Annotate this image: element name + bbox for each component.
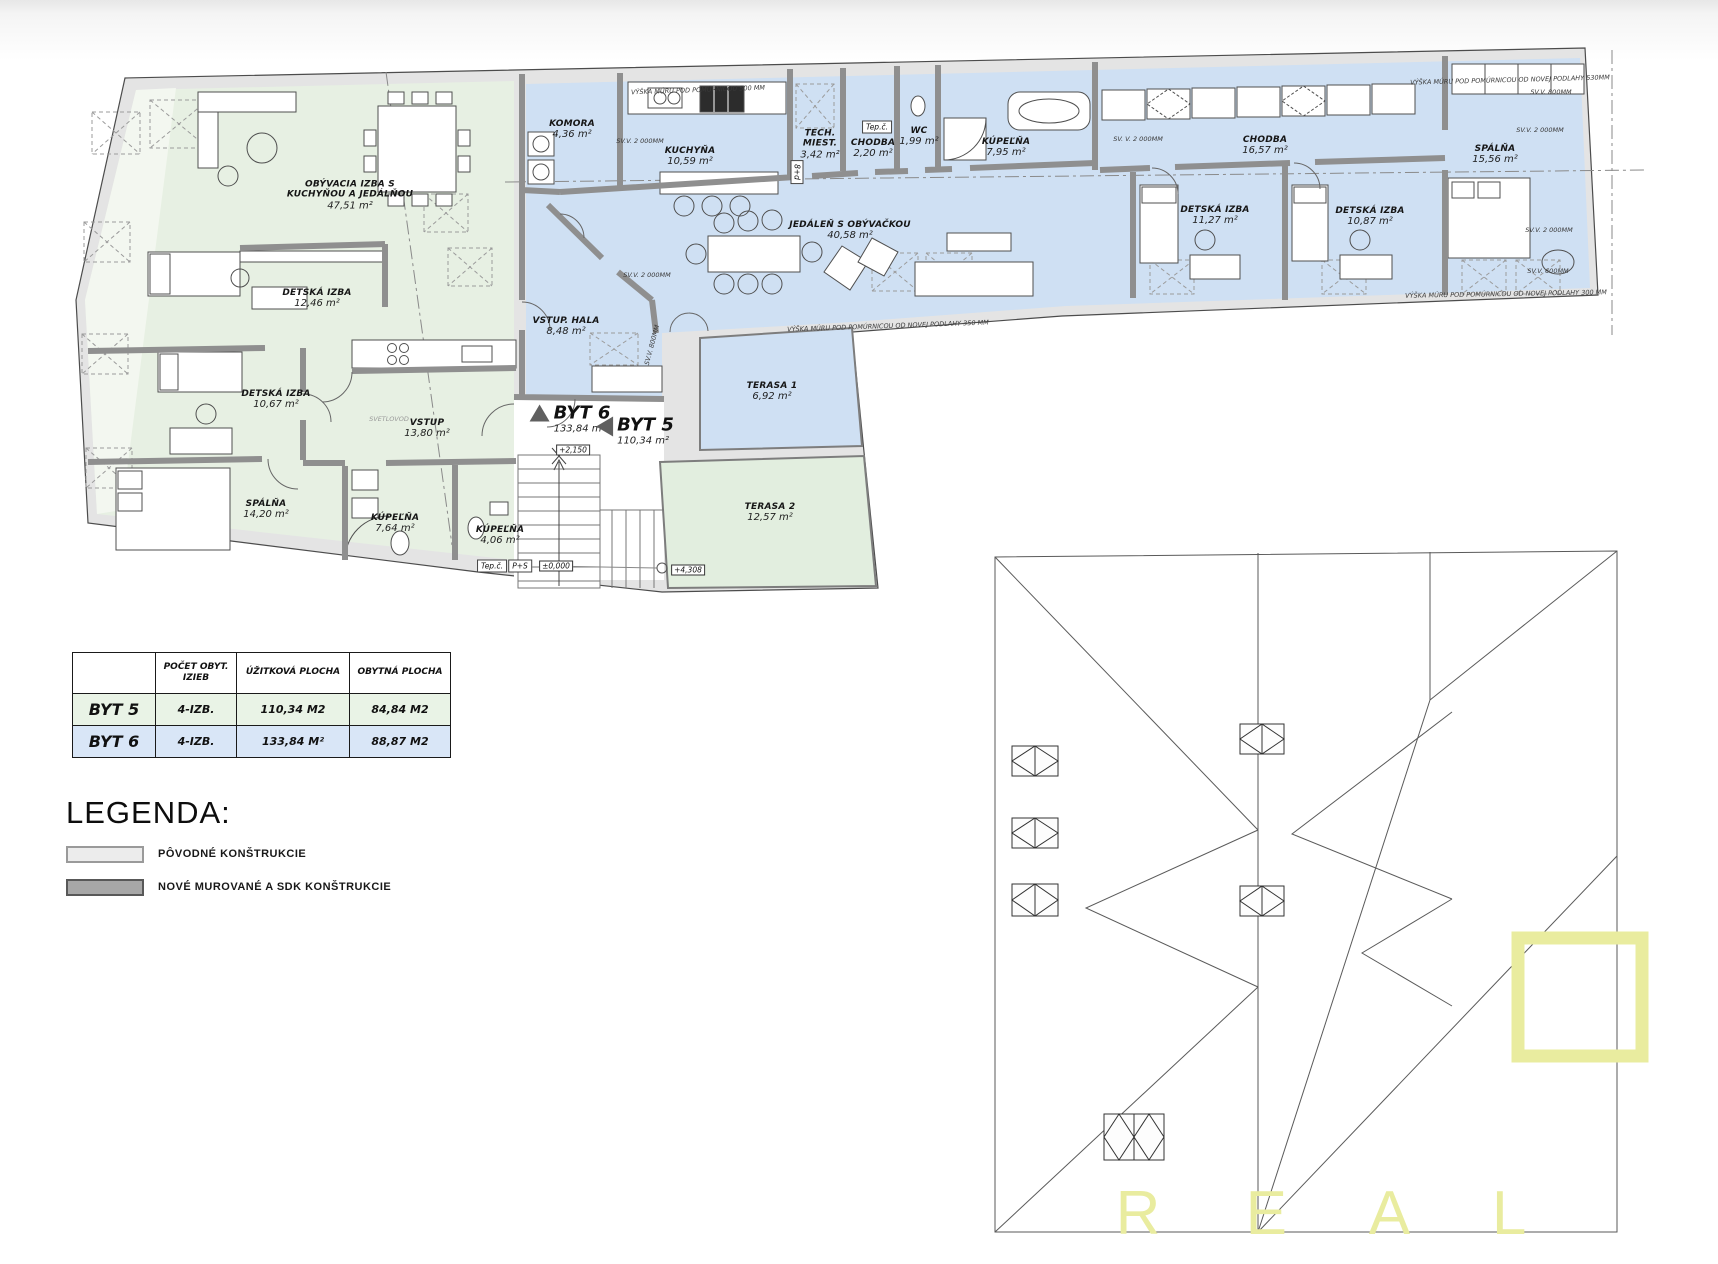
unit-label-byt5: BYT 5 110,34 m²: [596, 417, 674, 448]
height-annotation: SV.V. 800MM: [1530, 88, 1571, 96]
legend-item-label: PÔVODNÉ KONŠTRUKCIE: [158, 849, 306, 860]
table-cell-rooms: 4-IZB.: [156, 694, 237, 726]
table-cell-usable-area: 133,84 M²: [237, 726, 350, 758]
legend-item-original: PÔVODNÉ KONŠTRUKCIE: [66, 846, 391, 863]
unit-area: 110,34 m²: [617, 435, 674, 448]
room-label: VSTUP. HALA 8,48 m²: [532, 316, 599, 338]
brand-square-icon: [1518, 938, 1642, 1056]
room-name: JEDÁLEŇ S OBÝVAČKOU: [789, 220, 910, 230]
room-name: KÚPEĽŇA: [982, 137, 1030, 147]
level-marker: ±0,000: [539, 561, 573, 572]
room-name: VSTUP. HALA: [532, 316, 599, 326]
room-area: 10,59 m²: [665, 156, 716, 168]
room-label: KOMORA 4,36 m²: [549, 119, 595, 141]
legend-swatch-new-icon: [66, 879, 144, 896]
room-label: KÚPEĽŇA 7,64 m²: [371, 513, 419, 535]
height-annotation: SV.V. 600MM: [1527, 267, 1568, 275]
room-name: WC: [899, 126, 938, 136]
room-label: DETSKÁ IZBA 10,87 m²: [1335, 206, 1404, 228]
legend-title: LEGENDA:: [66, 796, 391, 830]
room-name: KÚPEĽŇA: [371, 513, 419, 523]
room-area: 12,46 m²: [282, 298, 351, 310]
table-cell-usable-area: 110,34 M2: [237, 694, 350, 726]
roof-plan: [995, 551, 1617, 1232]
table-cell-living-area: 88,87 M2: [350, 726, 451, 758]
room-name: CHODBA: [1242, 135, 1288, 145]
room-area: 7,95 m²: [982, 147, 1030, 159]
room-name: DETSKÁ IZBA: [1335, 206, 1404, 216]
room-label: VSTUP 13,80 m²: [404, 418, 450, 440]
room-name: DETSKÁ IZBA: [282, 288, 351, 298]
entrance-arrow-up-icon: [530, 405, 550, 422]
room-area: 8,48 m²: [532, 326, 599, 338]
room-area: 6,92 m²: [747, 391, 798, 403]
table-cell-rooms: 4-IZB.: [156, 726, 237, 758]
terrace-label: TERASA 2 12,57 m²: [745, 502, 796, 524]
room-area: 7,64 m²: [371, 523, 419, 535]
room-label: KÚPEĽŇA 4,06 m²: [476, 525, 524, 547]
table-header: ÚŽITKOVÁ PLOCHA: [237, 653, 350, 694]
room-name: VSTUP: [404, 418, 450, 428]
level-marker: +2,150: [556, 445, 590, 456]
room-label: KUCHYŇA 10,59 m²: [665, 146, 716, 168]
table-header-row: POČET OBYT. IZIEB ÚŽITKOVÁ PLOCHA OBYTNÁ…: [73, 653, 451, 694]
room-name: KOMORA: [549, 119, 595, 129]
room-name: KUCHYŇA: [665, 146, 716, 156]
table-row-byt6: BYT 6 4-IZB. 133,84 M² 88,87 M2: [73, 726, 451, 758]
room-area: 16,57 m²: [1242, 145, 1288, 157]
room-name: TERASA 1: [747, 381, 798, 391]
table-header: POČET OBYT. IZIEB: [156, 653, 237, 694]
room-area: 12,57 m²: [745, 512, 796, 524]
room-label: DETSKÁ IZBA 10,67 m²: [241, 389, 310, 411]
room-area: 1,99 m²: [899, 136, 938, 148]
table-header: OBYTNÁ PLOCHA: [350, 653, 451, 694]
room-area: 10,67 m²: [241, 399, 310, 411]
legend-item-new: NOVÉ MUROVANÉ A SDK KONŠTRUKCIE: [66, 879, 391, 896]
unit-name: BYT 5: [617, 417, 674, 435]
entrance-arrow-left-icon: [596, 417, 613, 437]
room-area: 4,36 m²: [549, 129, 595, 141]
floorplan-page: R E A L OBÝVACIA IZBA S KUCHYŇOU A JEDÁL…: [0, 0, 1718, 1264]
room-area: 10,87 m²: [1335, 216, 1404, 228]
room-label: SPÁLŇA 14,20 m²: [243, 499, 289, 521]
room-label: CHODBA 16,57 m²: [1242, 135, 1288, 157]
room-area: 11,27 m²: [1180, 215, 1249, 227]
room-area: 15,56 m²: [1472, 154, 1518, 166]
room-name: DETSKÁ IZBA: [1180, 205, 1249, 215]
brand-watermark: R E A L: [1116, 938, 1642, 1248]
legend-item-label: NOVÉ MUROVANÉ A SDK KONŠTRUKCIE: [158, 882, 391, 893]
svetlovod-label: SVETLOVOD: [369, 415, 409, 423]
room-label: DETSKÁ IZBA 12,46 m²: [282, 288, 351, 310]
room-name: TERASA 2: [745, 502, 796, 512]
table-row-byt5: BYT 5 4-IZB. 110,34 M2 84,84 M2: [73, 694, 451, 726]
height-annotation: SV.V. 2 000MM: [623, 271, 671, 279]
room-area: 4,06 m²: [476, 535, 524, 547]
height-annotation: SV. V. 2 000MM: [1113, 135, 1163, 143]
room-name: OBÝVACIA IZBA S KUCHYŇOU A JEDÁLŇOU: [276, 180, 424, 201]
brand-text: R E A L: [1116, 1179, 1561, 1248]
room-label: DETSKÁ IZBA 11,27 m²: [1180, 205, 1249, 227]
tech-box: Tep.č.: [477, 560, 507, 573]
table-cell-living-area: 84,84 M2: [350, 694, 451, 726]
level-marker: +4,308: [671, 565, 705, 576]
room-label: OBÝVACIA IZBA S KUCHYŇOU A JEDÁLŇOU 47,5…: [276, 180, 424, 213]
legend-swatch-original-icon: [66, 846, 144, 863]
room-label: KÚPEĽŇA 7,95 m²: [982, 137, 1030, 159]
table-cell-unit: BYT 5: [73, 694, 156, 726]
legend: LEGENDA: PÔVODNÉ KONŠTRUKCIE NOVÉ MUROVA…: [66, 796, 391, 896]
room-area: 40,58 m²: [789, 230, 910, 242]
tech-box: Tep.č.: [862, 121, 892, 134]
room-label: SPÁLŇA 15,56 m²: [1472, 144, 1518, 166]
height-annotation: SV.V. 2 000MM: [616, 137, 664, 145]
room-area: 13,80 m²: [404, 428, 450, 440]
area-table: POČET OBYT. IZIEB ÚŽITKOVÁ PLOCHA OBYTNÁ…: [72, 652, 451, 758]
table-cell-unit: BYT 6: [73, 726, 156, 758]
room-name: SPÁLŇA: [1472, 144, 1518, 154]
room-name: DETSKÁ IZBA: [241, 389, 310, 399]
room-name: CHODBA: [851, 138, 895, 148]
room-area: 14,20 m²: [243, 509, 289, 521]
room-name: KÚPEĽŇA: [476, 525, 524, 535]
terrace-label: TERASA 1 6,92 m²: [747, 381, 798, 403]
room-label: TECH. MIEST. 3,42 m²: [796, 129, 844, 162]
height-annotation: SV.V. 2 000MM: [1516, 126, 1564, 134]
room-label: JEDÁLEŇ S OBÝVAČKOU 40,58 m²: [789, 220, 910, 242]
room-name: SPÁLŇA: [243, 499, 289, 509]
room-area: 2,20 m²: [851, 148, 895, 160]
roof-skylights: [1012, 724, 1284, 1160]
room-label: WC 1,99 m²: [899, 126, 938, 148]
room-name: TECH. MIEST.: [796, 129, 844, 150]
tech-box: P+S: [508, 560, 532, 573]
room-label: CHODBA 2,20 m²: [851, 138, 895, 160]
table-header: [73, 653, 156, 694]
height-annotation: SV.V. 2 000MM: [1525, 226, 1573, 234]
floorplan-drawing: R E A L: [0, 0, 1718, 1264]
room-area: 47,51 m²: [276, 200, 424, 212]
tech-box: 8+d: [791, 160, 804, 184]
